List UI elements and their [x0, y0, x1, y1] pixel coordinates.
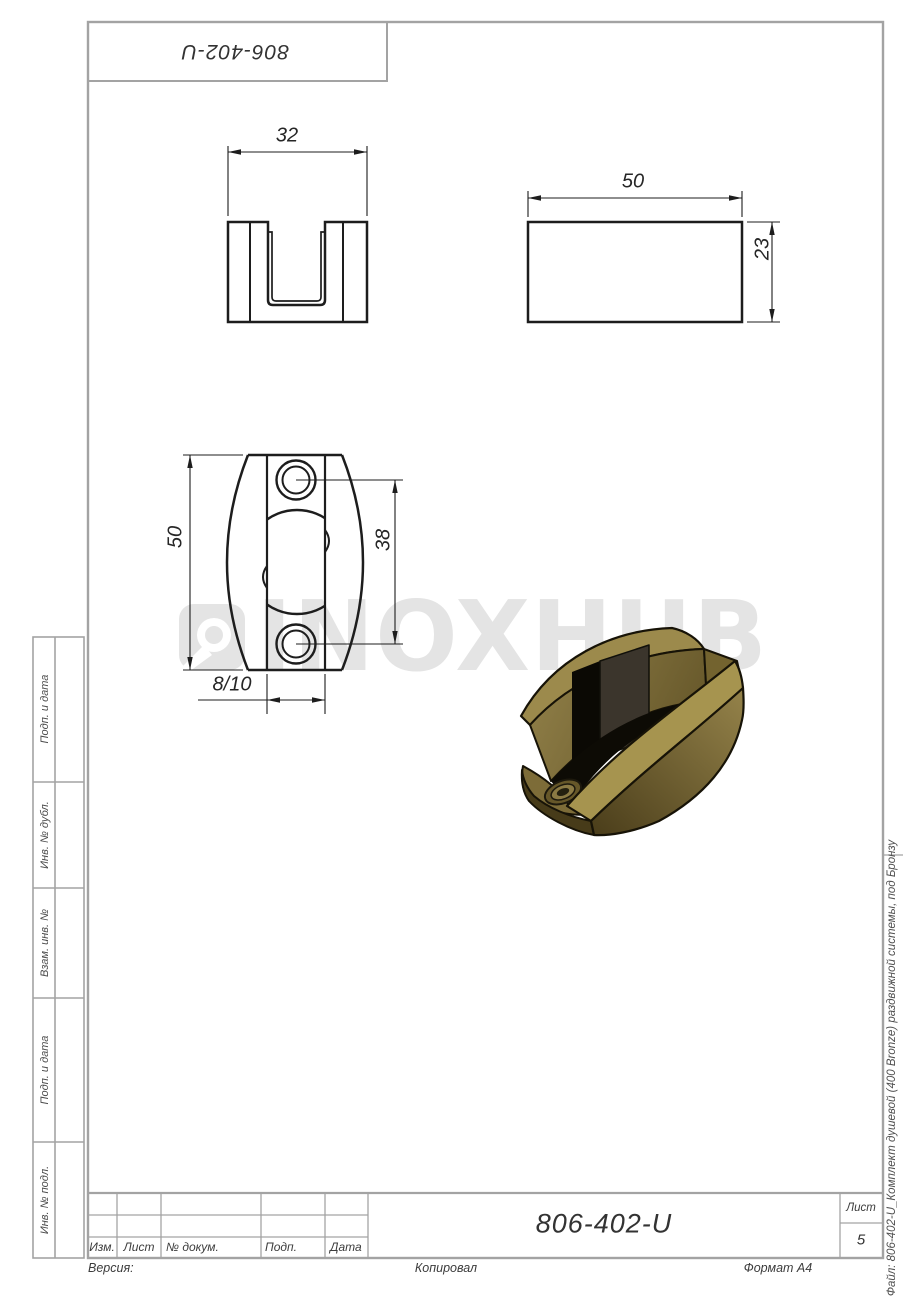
drawing-sheet: { "top_stamp": { "designation": "806-402… — [0, 0, 905, 1280]
dim-front-width: 32 — [276, 125, 298, 148]
margin-file-note: Файл: 806-402-U_Комплект душевой (400 Br… — [886, 840, 898, 1296]
dim-slot-width: 8/10 — [213, 674, 252, 697]
title-designation: 806-402-U — [536, 1209, 673, 1240]
top-view — [227, 455, 363, 670]
dimension-arrows — [187, 149, 774, 702]
dim-side-height: 23 — [752, 238, 775, 260]
footer-version-label: Версия: — [88, 1261, 134, 1275]
title-block-lines — [88, 855, 903, 1258]
title-col-docnum: № докум. — [166, 1240, 219, 1254]
sheet-number: 5 — [857, 1232, 865, 1249]
sidebar-label-vzam-inv: Взам. инв. № — [39, 909, 51, 977]
dim-side-length: 50 — [622, 171, 644, 194]
title-col-list: Лист — [124, 1240, 155, 1254]
sidebar-label-podp-data-2: Подп. и дата — [39, 1036, 51, 1105]
sidebar-label-inv-dubl: Инв. № дубл. — [39, 801, 51, 869]
sheet-label: Лист — [846, 1202, 876, 1214]
sidebar-label-inv-podl: Инв. № подл. — [39, 1166, 51, 1234]
top-stamp-designation: 806-402-U — [181, 39, 289, 63]
bronze-3d-render — [521, 628, 744, 835]
drawing-frame — [88, 22, 883, 1258]
orthographic-views — [183, 146, 780, 714]
dim-hole-spacing: 38 — [373, 529, 396, 551]
sidebar-label-podp-data-1: Подп. и дата — [39, 675, 51, 744]
footer-format-label: Формат А4 — [744, 1261, 812, 1275]
title-col-izm: Изм. — [89, 1240, 115, 1254]
sheet-frame-group — [33, 22, 903, 1258]
title-col-podp: Подп. — [265, 1240, 297, 1254]
footer-copied-label: Копировал — [415, 1261, 477, 1275]
side-view — [528, 222, 742, 322]
front-view — [228, 222, 367, 322]
title-col-data: Дата — [330, 1240, 362, 1254]
dim-top-length: 50 — [165, 526, 188, 548]
drawing-canvas — [0, 0, 905, 1280]
